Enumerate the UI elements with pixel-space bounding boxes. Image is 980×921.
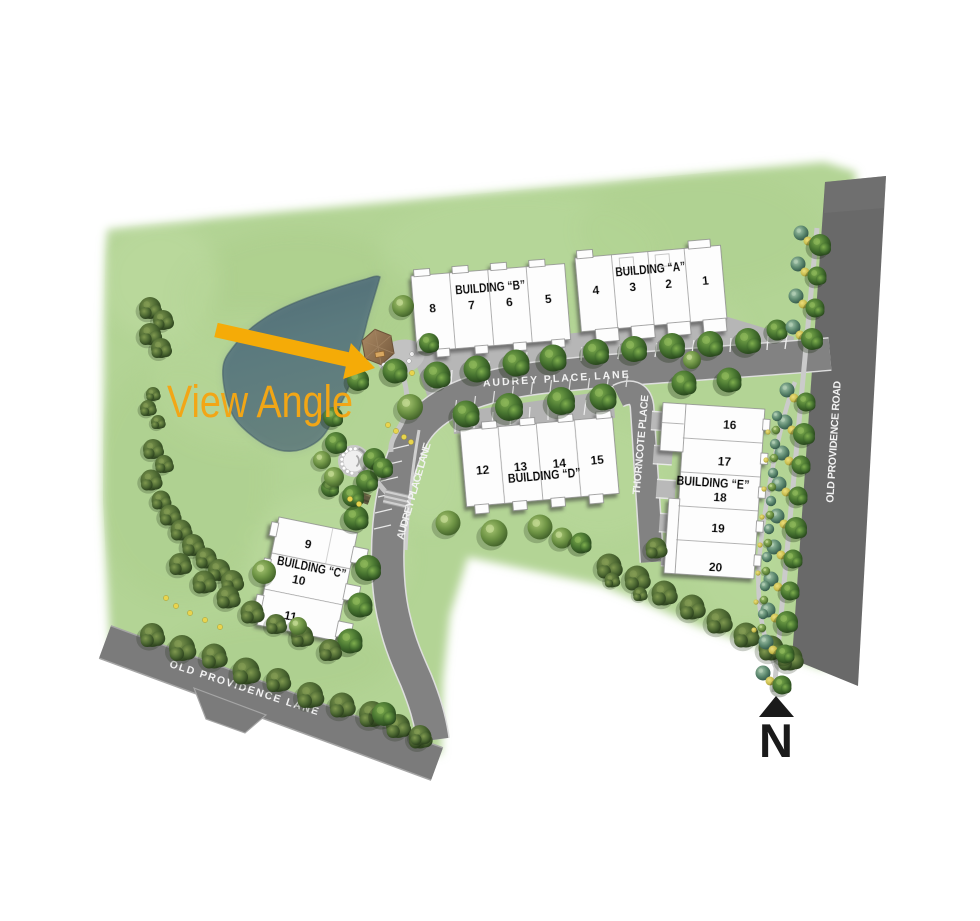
svg-text:N: N [759, 714, 793, 767]
svg-text:20: 20 [708, 560, 723, 575]
svg-text:14: 14 [552, 456, 567, 471]
svg-text:19: 19 [711, 521, 726, 536]
svg-text:16: 16 [723, 418, 738, 433]
svg-text:View Angle: View Angle [167, 376, 353, 427]
svg-text:17: 17 [717, 454, 732, 469]
svg-text:12: 12 [475, 463, 490, 478]
svg-text:18: 18 [713, 490, 728, 505]
svg-text:13: 13 [513, 459, 528, 474]
svg-text:15: 15 [590, 453, 605, 468]
